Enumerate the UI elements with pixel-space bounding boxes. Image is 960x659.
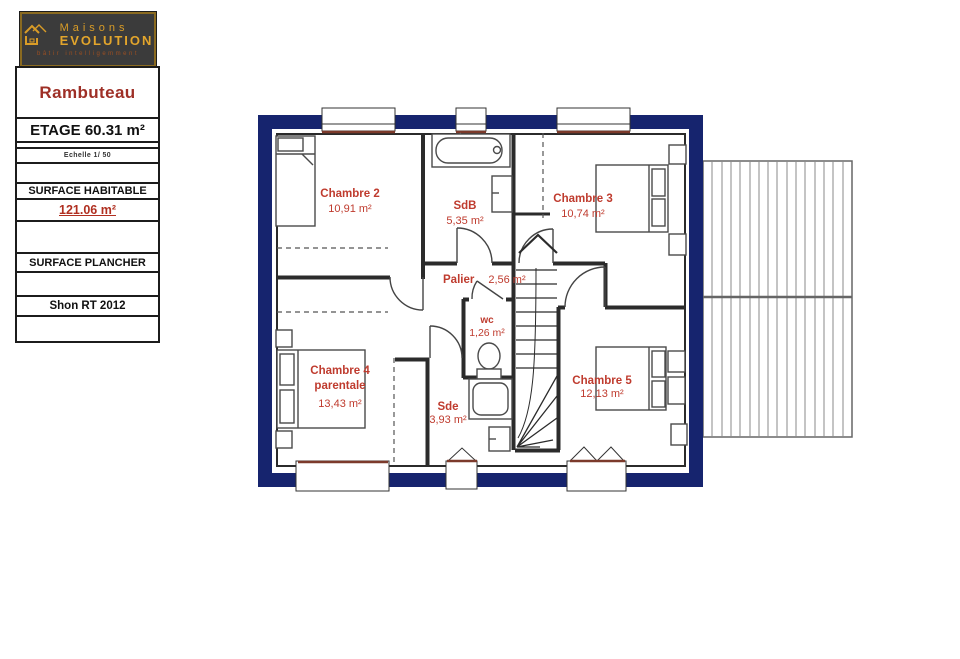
label-sdb: SdB 5,35 m²: [446, 198, 483, 228]
label-chambre4: Chambre 4 parentale 13,43 m²: [310, 363, 369, 411]
shower: [469, 379, 512, 419]
washbasin-sde: [489, 427, 510, 451]
label-chambre5: Chambre 5 12,13 m²: [572, 374, 631, 400]
room-area: 1,26 m²: [469, 327, 505, 339]
room-name: Chambre 4: [310, 365, 369, 377]
room-area: 5,35 m²: [446, 215, 483, 227]
room-name: SdB: [453, 200, 476, 212]
label-sde: Sde 3,93 m²: [429, 400, 466, 426]
room-area: 10,74 m²: [561, 208, 604, 220]
window-top-chambre2: [322, 108, 395, 132]
room-name: Sde: [437, 401, 458, 413]
room-name: Chambre 2: [320, 188, 379, 200]
room-name: Chambre 5: [572, 375, 631, 387]
room-name-line2: parentale: [314, 380, 365, 392]
window-top-chambre3: [557, 108, 630, 132]
label-palier: Palier 2,56 m²: [443, 274, 526, 286]
room-area: 10,91 m²: [328, 203, 371, 215]
label-chambre2: Chambre 2 10,91 m²: [320, 186, 379, 216]
room-name: wc: [480, 315, 493, 326]
floor-plan-sheet: Maisons EVOLUTION bâtir intelligemment R…: [0, 0, 960, 659]
label-wc: wc 1,26 m²: [469, 313, 505, 339]
label-chambre3: Chambre 3 10,74 m²: [553, 191, 612, 221]
room-area: 3,93 m²: [429, 414, 466, 426]
window-bottom-chambre4: [296, 461, 389, 491]
washbasin-sdb: [492, 176, 512, 212]
bathtub: [432, 134, 510, 167]
room-name: Chambre 3: [553, 193, 612, 205]
bed-chambre2: [276, 136, 315, 226]
room-area: 2,56 m²: [488, 274, 525, 286]
room-name: Palier: [443, 274, 474, 286]
toilet: [477, 343, 501, 379]
room-area: 13,43 m²: [318, 398, 361, 411]
roof-hatch: [703, 161, 852, 437]
room-area: 12,13 m²: [580, 388, 623, 400]
